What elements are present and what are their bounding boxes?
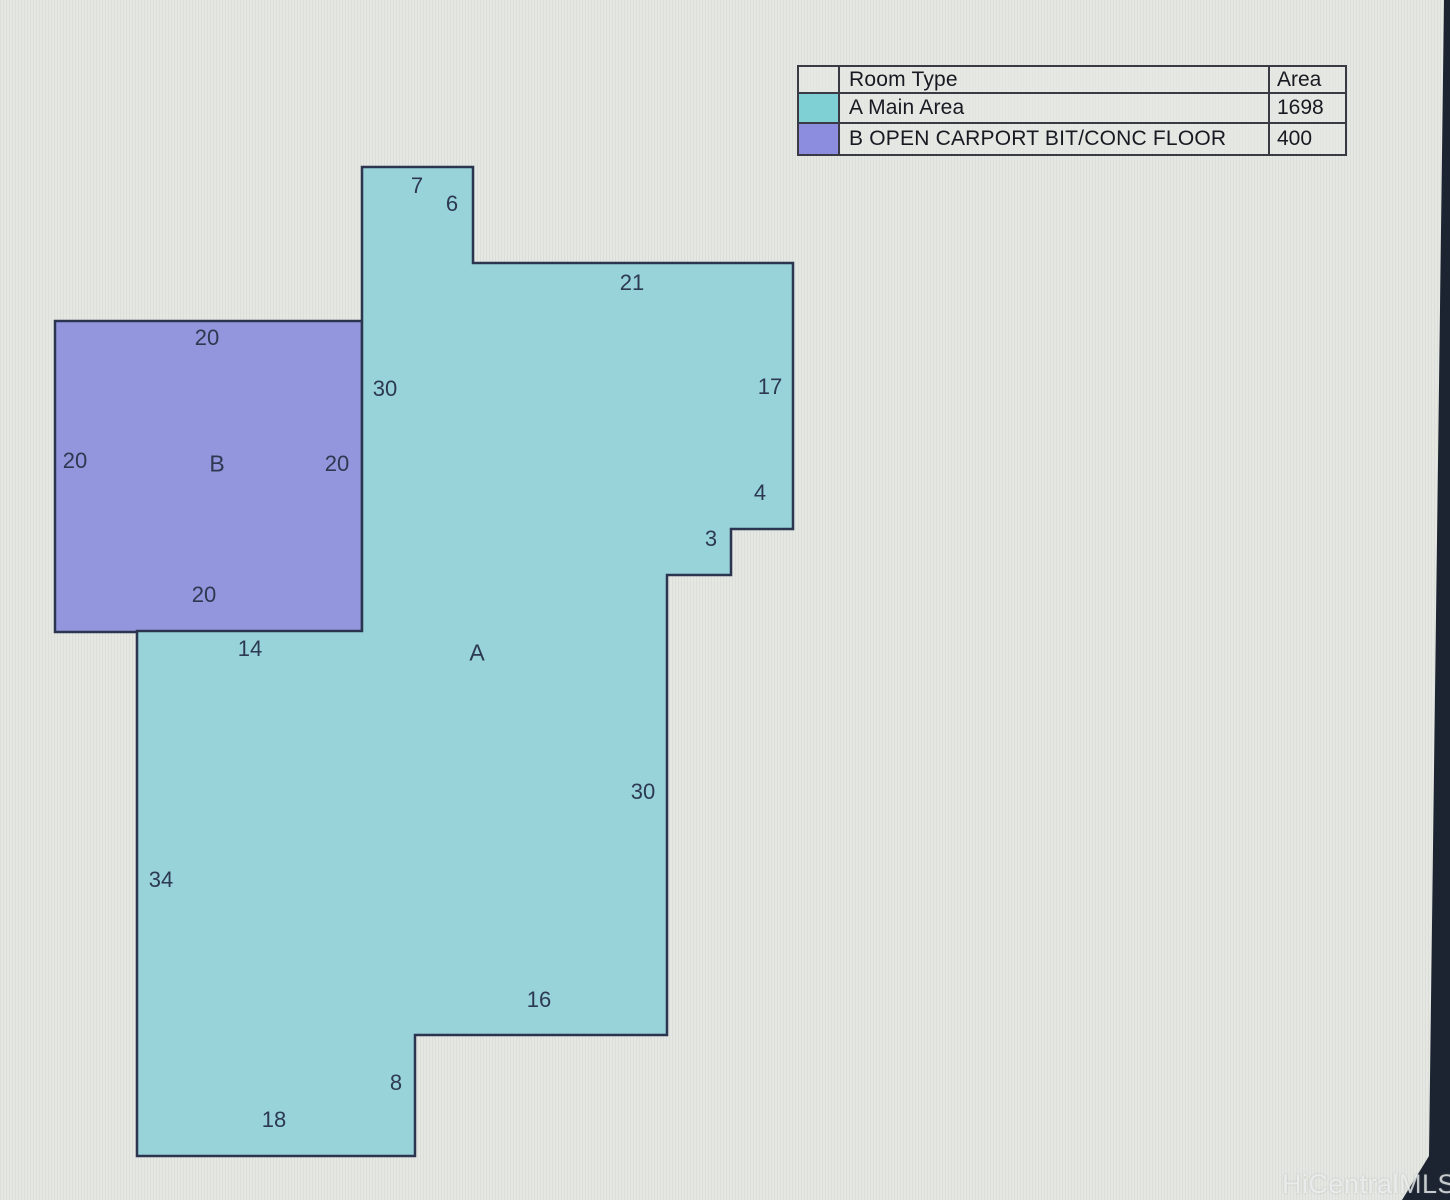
hicentralmls-watermark: HiCentralMLS xyxy=(1282,1169,1450,1200)
floor-plan-page: 7 6 21 30 17 4 3 14 A 30 34 16 8 18 20 2… xyxy=(0,0,1450,1200)
screen-bezel-edge xyxy=(0,0,1450,1200)
bezel-polygon xyxy=(1402,0,1450,1200)
